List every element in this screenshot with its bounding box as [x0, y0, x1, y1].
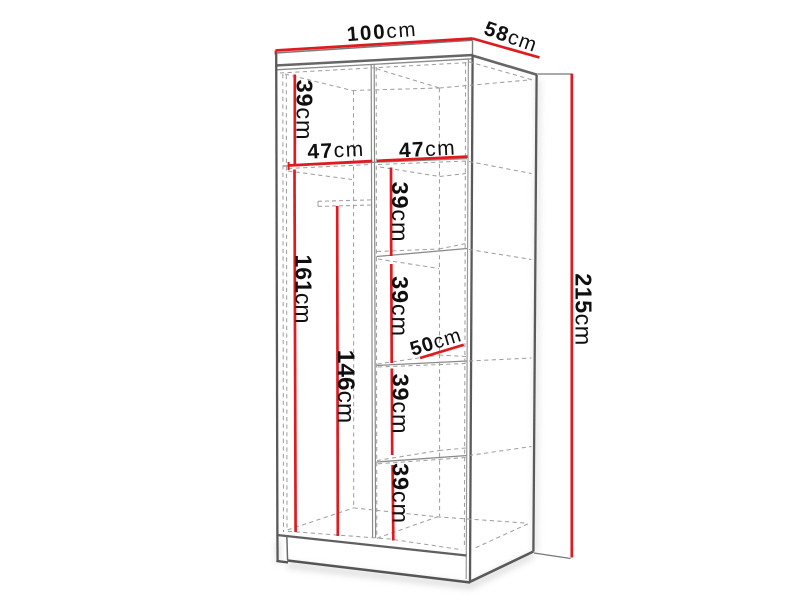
svg-text:215cm: 215cm: [570, 273, 596, 346]
svg-text:39cm: 39cm: [388, 374, 414, 435]
svg-text:39cm: 39cm: [388, 463, 414, 524]
svg-text:47cm: 47cm: [307, 137, 365, 163]
svg-text:39cm: 39cm: [292, 80, 318, 141]
svg-text:39cm: 39cm: [387, 182, 413, 243]
svg-text:146cm: 146cm: [333, 350, 360, 424]
svg-text:161cm: 161cm: [291, 254, 317, 323]
svg-text:47cm: 47cm: [398, 136, 456, 162]
svg-text:39cm: 39cm: [387, 276, 413, 337]
